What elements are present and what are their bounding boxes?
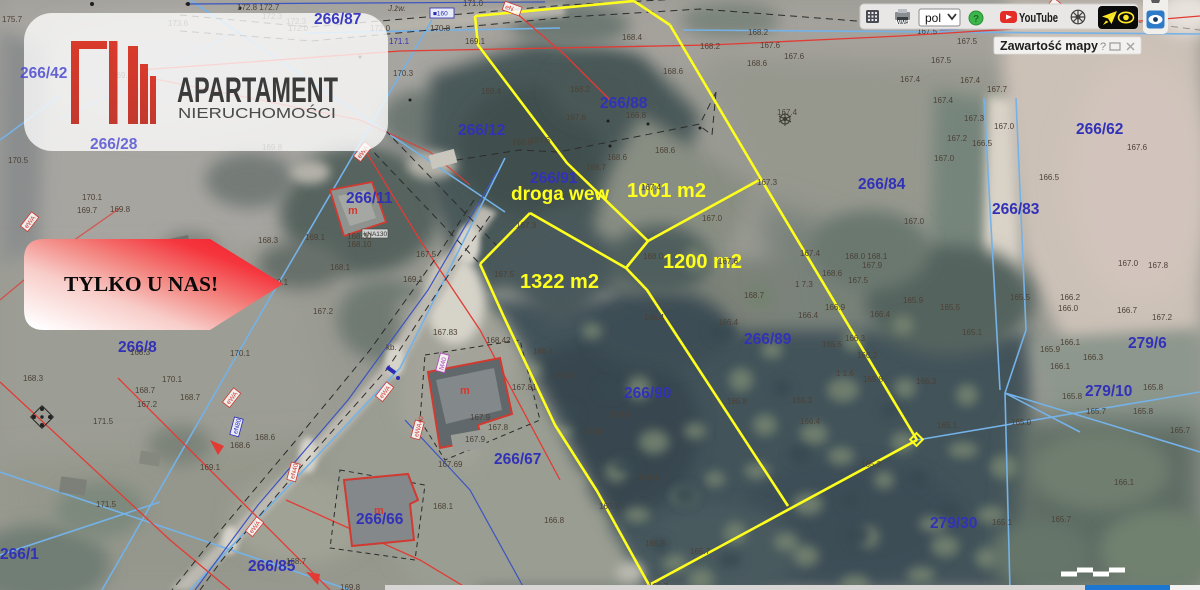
- svg-text:266/67: 266/67: [494, 451, 541, 468]
- svg-text:170.3: 170.3: [393, 69, 414, 78]
- svg-text:166.8: 166.8: [626, 111, 647, 120]
- svg-text:166.5: 166.5: [1039, 173, 1060, 182]
- svg-text:167.2: 167.2: [947, 134, 968, 143]
- svg-text:165.8: 165.8: [727, 397, 748, 406]
- svg-text:167.2: 167.2: [1152, 313, 1173, 322]
- svg-text:168.42: 168.42: [486, 336, 511, 345]
- svg-text:169.8: 169.8: [110, 205, 131, 214]
- svg-text:167.2: 167.2: [313, 307, 334, 316]
- svg-text:?: ?: [1100, 41, 1106, 53]
- svg-text:172.8 172.7: 172.8 172.7: [237, 3, 280, 12]
- svg-text:166.2: 166.2: [857, 351, 878, 360]
- svg-text:168.0: 168.0: [643, 252, 664, 261]
- svg-text:168.0 168.1: 168.0 168.1: [845, 252, 888, 261]
- svg-text:m: m: [348, 205, 358, 217]
- svg-text:167.81: 167.81: [512, 383, 537, 392]
- svg-text:266/28: 266/28: [90, 136, 138, 153]
- svg-text:1 7.3: 1 7.3: [795, 280, 813, 289]
- svg-text:165.8: 165.8: [1133, 407, 1154, 416]
- svg-text:266/87: 266/87: [314, 11, 361, 28]
- svg-text:166.3: 166.3: [845, 334, 866, 343]
- svg-text:279/30: 279/30: [930, 515, 977, 532]
- svg-text:168.6: 168.6: [663, 67, 684, 76]
- svg-text:167.0: 167.0: [994, 122, 1015, 131]
- svg-text:168.6: 168.6: [230, 441, 251, 450]
- svg-text:169.7: 169.7: [77, 206, 98, 215]
- svg-text:165.5: 165.5: [940, 303, 961, 312]
- svg-text:166.2: 166.2: [1060, 293, 1081, 302]
- svg-text:175.7: 175.7: [2, 15, 23, 24]
- svg-text:■160: ■160: [433, 11, 448, 18]
- svg-text:166.4: 166.4: [718, 318, 739, 327]
- svg-text:165.0: 165.0: [1011, 418, 1032, 427]
- svg-text:170.8: 170.8: [430, 24, 451, 33]
- svg-text:168.7: 168.7: [586, 163, 607, 172]
- svg-text:169.8: 169.8: [340, 583, 361, 590]
- svg-text:167.4: 167.4: [933, 96, 954, 105]
- svg-text:167.3: 167.3: [964, 114, 985, 123]
- svg-text:279/10: 279/10: [1085, 383, 1132, 400]
- svg-text:165.1: 165.1: [937, 421, 958, 430]
- svg-text:168.1: 168.1: [433, 502, 454, 511]
- svg-text:169.4: 169.4: [481, 87, 502, 96]
- svg-text:TYLKO U NAS!: TYLKO U NAS!: [64, 272, 218, 296]
- svg-text:167.8: 167.8: [1148, 261, 1169, 270]
- svg-text:J.żw.: J.żw.: [387, 4, 406, 13]
- svg-text:167.5: 167.5: [494, 270, 515, 279]
- svg-text:170.1: 170.1: [82, 193, 103, 202]
- svg-text:169.1: 169.1: [200, 463, 221, 472]
- svg-text:168.3: 168.3: [23, 374, 44, 383]
- svg-text:167.83: 167.83: [433, 328, 458, 337]
- svg-text:168.1: 168.1: [330, 263, 351, 272]
- svg-text:168.6: 168.6: [255, 433, 276, 442]
- svg-text:168.10: 168.10: [347, 240, 372, 249]
- svg-text:165.7: 165.7: [1086, 407, 1107, 416]
- svg-text:165.7: 165.7: [690, 547, 711, 556]
- svg-text:266/83: 266/83: [992, 201, 1040, 218]
- svg-text:m: m: [374, 505, 384, 517]
- svg-text:WMS: WMS: [896, 20, 910, 26]
- svg-text:168.2: 168.2: [700, 42, 721, 51]
- svg-text:165.9: 165.9: [903, 296, 924, 305]
- svg-text:167.9: 167.9: [465, 435, 486, 444]
- svg-text:167.4: 167.4: [800, 249, 821, 258]
- svg-text:171.1: 171.1: [389, 37, 410, 46]
- svg-text:165.2: 165.2: [861, 460, 882, 469]
- svg-text:1001 m2: 1001 m2: [627, 180, 706, 202]
- svg-text:266/42: 266/42: [20, 65, 67, 82]
- svg-text:167.6: 167.6: [530, 136, 551, 145]
- svg-text:166.9: 166.9: [825, 303, 846, 312]
- svg-text:166.7: 166.7: [1117, 306, 1138, 315]
- svg-text:167.8: 167.8: [488, 423, 509, 432]
- svg-text:170.5: 170.5: [8, 156, 29, 165]
- svg-text:171.5: 171.5: [96, 500, 117, 509]
- svg-text:Zawartość mapy: Zawartość mapy: [1000, 39, 1098, 53]
- svg-text:168.4: 168.4: [622, 33, 643, 42]
- svg-text:166.4: 166.4: [870, 310, 891, 319]
- svg-text:165.8: 165.8: [1143, 383, 1164, 392]
- svg-text:167.6: 167.6: [760, 41, 781, 50]
- svg-text:167.0: 167.0: [1118, 259, 1139, 268]
- svg-text:167.6: 167.6: [718, 257, 739, 266]
- svg-text:167.6: 167.6: [566, 113, 587, 122]
- svg-text:167.5: 167.5: [416, 250, 437, 259]
- svg-text:169.1: 169.1: [403, 275, 424, 284]
- svg-text:m: m: [460, 385, 470, 397]
- svg-text:167.69: 167.69: [438, 460, 463, 469]
- svg-text:167.7: 167.7: [987, 85, 1008, 94]
- svg-text:168.6: 168.6: [747, 59, 768, 68]
- svg-text:165.7: 165.7: [1170, 426, 1191, 435]
- svg-text:167.3: 167.3: [757, 178, 778, 187]
- svg-text:266/88: 266/88: [600, 95, 648, 112]
- svg-text:kb.: kb.: [386, 343, 397, 352]
- svg-text:165.7: 165.7: [599, 502, 620, 511]
- svg-text:167.5: 167.5: [957, 37, 978, 46]
- svg-text:165.7: 165.7: [1051, 515, 1072, 524]
- svg-text:165.5: 165.5: [1010, 293, 1031, 302]
- svg-text:YouTube: YouTube: [1019, 11, 1058, 25]
- svg-text:165.8: 165.8: [863, 375, 884, 384]
- svg-text:NIERUCHOMOŚCI: NIERUCHOMOŚCI: [178, 104, 336, 122]
- svg-text:166.5: 166.5: [972, 139, 993, 148]
- svg-text:168.7: 168.7: [744, 291, 765, 300]
- svg-text:166.4: 166.4: [798, 311, 819, 320]
- svg-text:266/12: 266/12: [458, 122, 505, 139]
- svg-text:171.0: 171.0: [463, 0, 484, 8]
- svg-text:169.1: 169.1: [465, 37, 486, 46]
- svg-text:166.3: 166.3: [916, 377, 937, 386]
- svg-text:droga wew: droga wew: [511, 184, 609, 205]
- svg-text:165.9: 165.9: [1040, 345, 1061, 354]
- svg-text:168.2: 168.2: [570, 85, 591, 94]
- svg-text:171.5: 171.5: [93, 417, 114, 426]
- svg-text:165.1: 165.1: [992, 518, 1013, 527]
- svg-text:1322 m2: 1322 m2: [520, 271, 599, 293]
- svg-text:165.8: 165.8: [645, 539, 666, 548]
- svg-text:166.4: 166.4: [533, 347, 554, 356]
- svg-text:168.7: 168.7: [180, 393, 201, 402]
- svg-text:165.1: 165.1: [962, 328, 983, 337]
- svg-text:166.1: 166.1: [1060, 338, 1081, 347]
- svg-text:166.4: 166.4: [610, 410, 631, 419]
- svg-text:?: ?: [973, 14, 979, 25]
- svg-text:167.4: 167.4: [641, 183, 662, 192]
- svg-text:266/1: 266/1: [0, 546, 39, 563]
- svg-text:1 1.6: 1 1.6: [836, 369, 854, 378]
- svg-text:167.4: 167.4: [960, 76, 981, 85]
- svg-text:169.1: 169.1: [305, 233, 326, 242]
- svg-text:166.5: 166.5: [554, 371, 575, 380]
- svg-text:166.0: 166.0: [1058, 304, 1079, 313]
- svg-text:168.7: 168.7: [286, 557, 307, 566]
- svg-text:165.8: 165.8: [1062, 392, 1083, 401]
- svg-text:168.6: 168.6: [607, 153, 628, 162]
- svg-text:167.3: 167.3: [516, 221, 537, 230]
- svg-text:266/90: 266/90: [624, 385, 671, 402]
- svg-text:167.6: 167.6: [784, 52, 805, 61]
- svg-text:167.9: 167.9: [470, 413, 491, 422]
- svg-text:168.6: 168.6: [655, 146, 676, 155]
- svg-text:167.4: 167.4: [900, 75, 921, 84]
- svg-text:166.1: 166.1: [1114, 478, 1135, 487]
- svg-text:266/89: 266/89: [744, 331, 792, 348]
- svg-text:168.7: 168.7: [135, 386, 156, 395]
- svg-text:167.5: 167.5: [931, 56, 952, 65]
- svg-text:167.2: 167.2: [137, 400, 158, 409]
- svg-text:168.2: 168.2: [748, 28, 769, 37]
- svg-text:168.3: 168.3: [258, 236, 279, 245]
- svg-text:167.0: 167.0: [702, 214, 723, 223]
- svg-text:pol: pol: [925, 11, 941, 25]
- svg-text:165.5: 165.5: [822, 340, 843, 349]
- svg-text:167.0: 167.0: [904, 217, 925, 226]
- svg-text:167.6: 167.6: [1127, 143, 1148, 152]
- svg-text:166.8: 166.8: [544, 516, 565, 525]
- svg-text:APARTAMENT: APARTAMENT: [177, 71, 338, 110]
- svg-text:166.3: 166.3: [1083, 353, 1104, 362]
- svg-text:266/84: 266/84: [858, 176, 906, 193]
- svg-text:166.4: 166.4: [644, 313, 665, 322]
- svg-text:166.4: 166.4: [638, 473, 659, 482]
- svg-text:168.6: 168.6: [822, 269, 843, 278]
- svg-text:166.1: 166.1: [1050, 362, 1071, 371]
- svg-text:170.1: 170.1: [230, 349, 251, 358]
- svg-text:167.0: 167.0: [934, 154, 955, 163]
- svg-text:266/62: 266/62: [1076, 121, 1123, 138]
- svg-text:167.4: 167.4: [777, 108, 798, 117]
- svg-text:166.4: 166.4: [800, 417, 821, 426]
- svg-text:167.5: 167.5: [848, 276, 869, 285]
- svg-text:170.1: 170.1: [162, 375, 183, 384]
- svg-text:165.8: 165.8: [584, 427, 605, 436]
- svg-text:168.3: 168.3: [130, 348, 151, 357]
- svg-text:279/6: 279/6: [1128, 335, 1167, 352]
- svg-text:167.9: 167.9: [862, 261, 883, 270]
- svg-text:165.3: 165.3: [792, 396, 813, 405]
